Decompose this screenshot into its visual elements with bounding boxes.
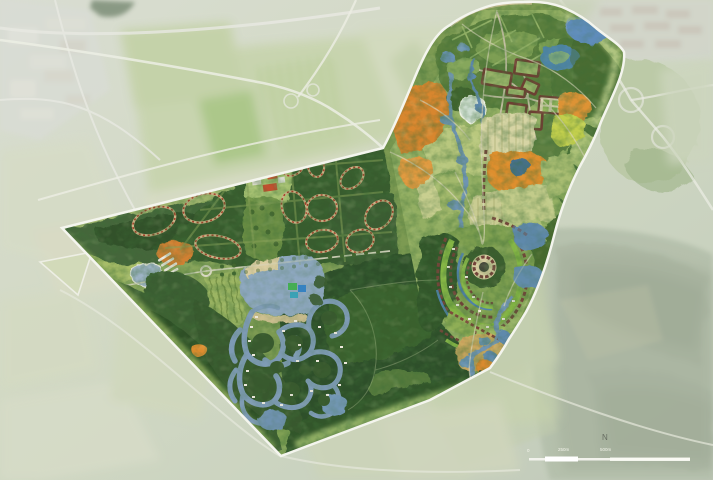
svg-text:N: N: [602, 433, 608, 442]
svg-text:250m: 250m: [558, 447, 570, 452]
svg-text:500m: 500m: [600, 447, 612, 452]
